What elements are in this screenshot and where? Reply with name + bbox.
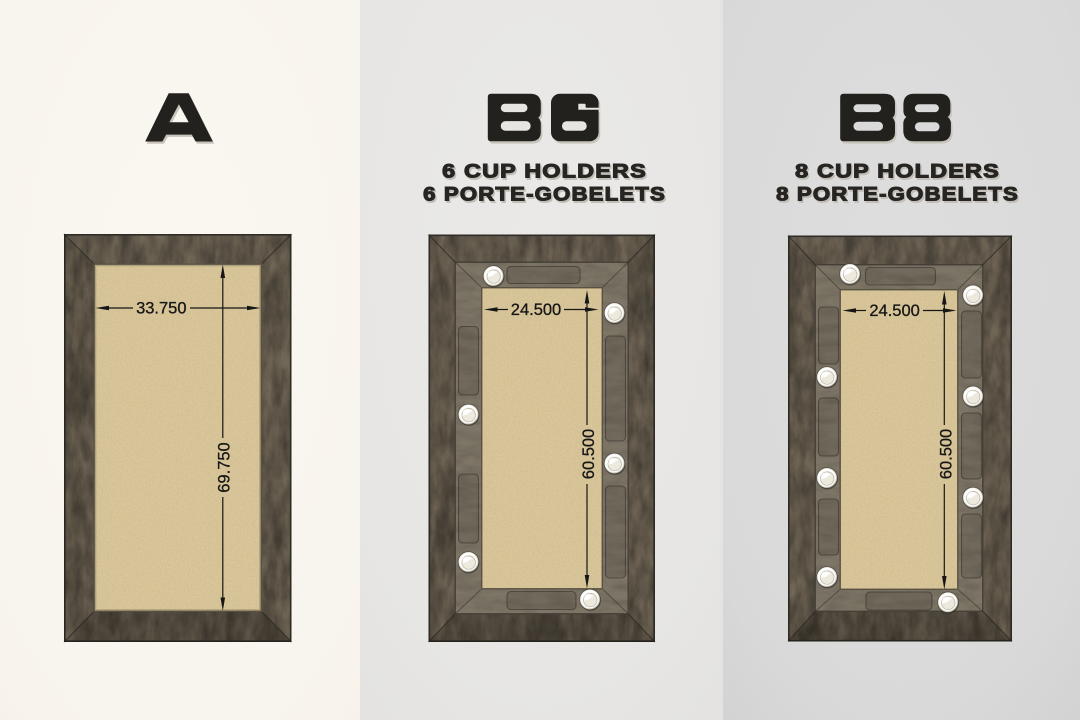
svg-text:6 CUP HOLDERS: 6 CUP HOLDERS (442, 160, 647, 182)
svg-text:8 CUP HOLDERS: 8 CUP HOLDERS (795, 160, 1000, 182)
svg-text:60.500: 60.500 (938, 429, 956, 479)
svg-text:33.750: 33.750 (136, 300, 186, 318)
svg-text:24.500: 24.500 (869, 302, 919, 320)
svg-text:60.500: 60.500 (580, 429, 598, 479)
svg-text:69.750: 69.750 (216, 442, 234, 492)
svg-text:24.500: 24.500 (511, 301, 561, 319)
svg-text:6 PORTE-GOBELETS: 6 PORTE-GOBELETS (423, 184, 666, 205)
svg-text:8 PORTE-GOBELETS: 8 PORTE-GOBELETS (776, 184, 1019, 205)
